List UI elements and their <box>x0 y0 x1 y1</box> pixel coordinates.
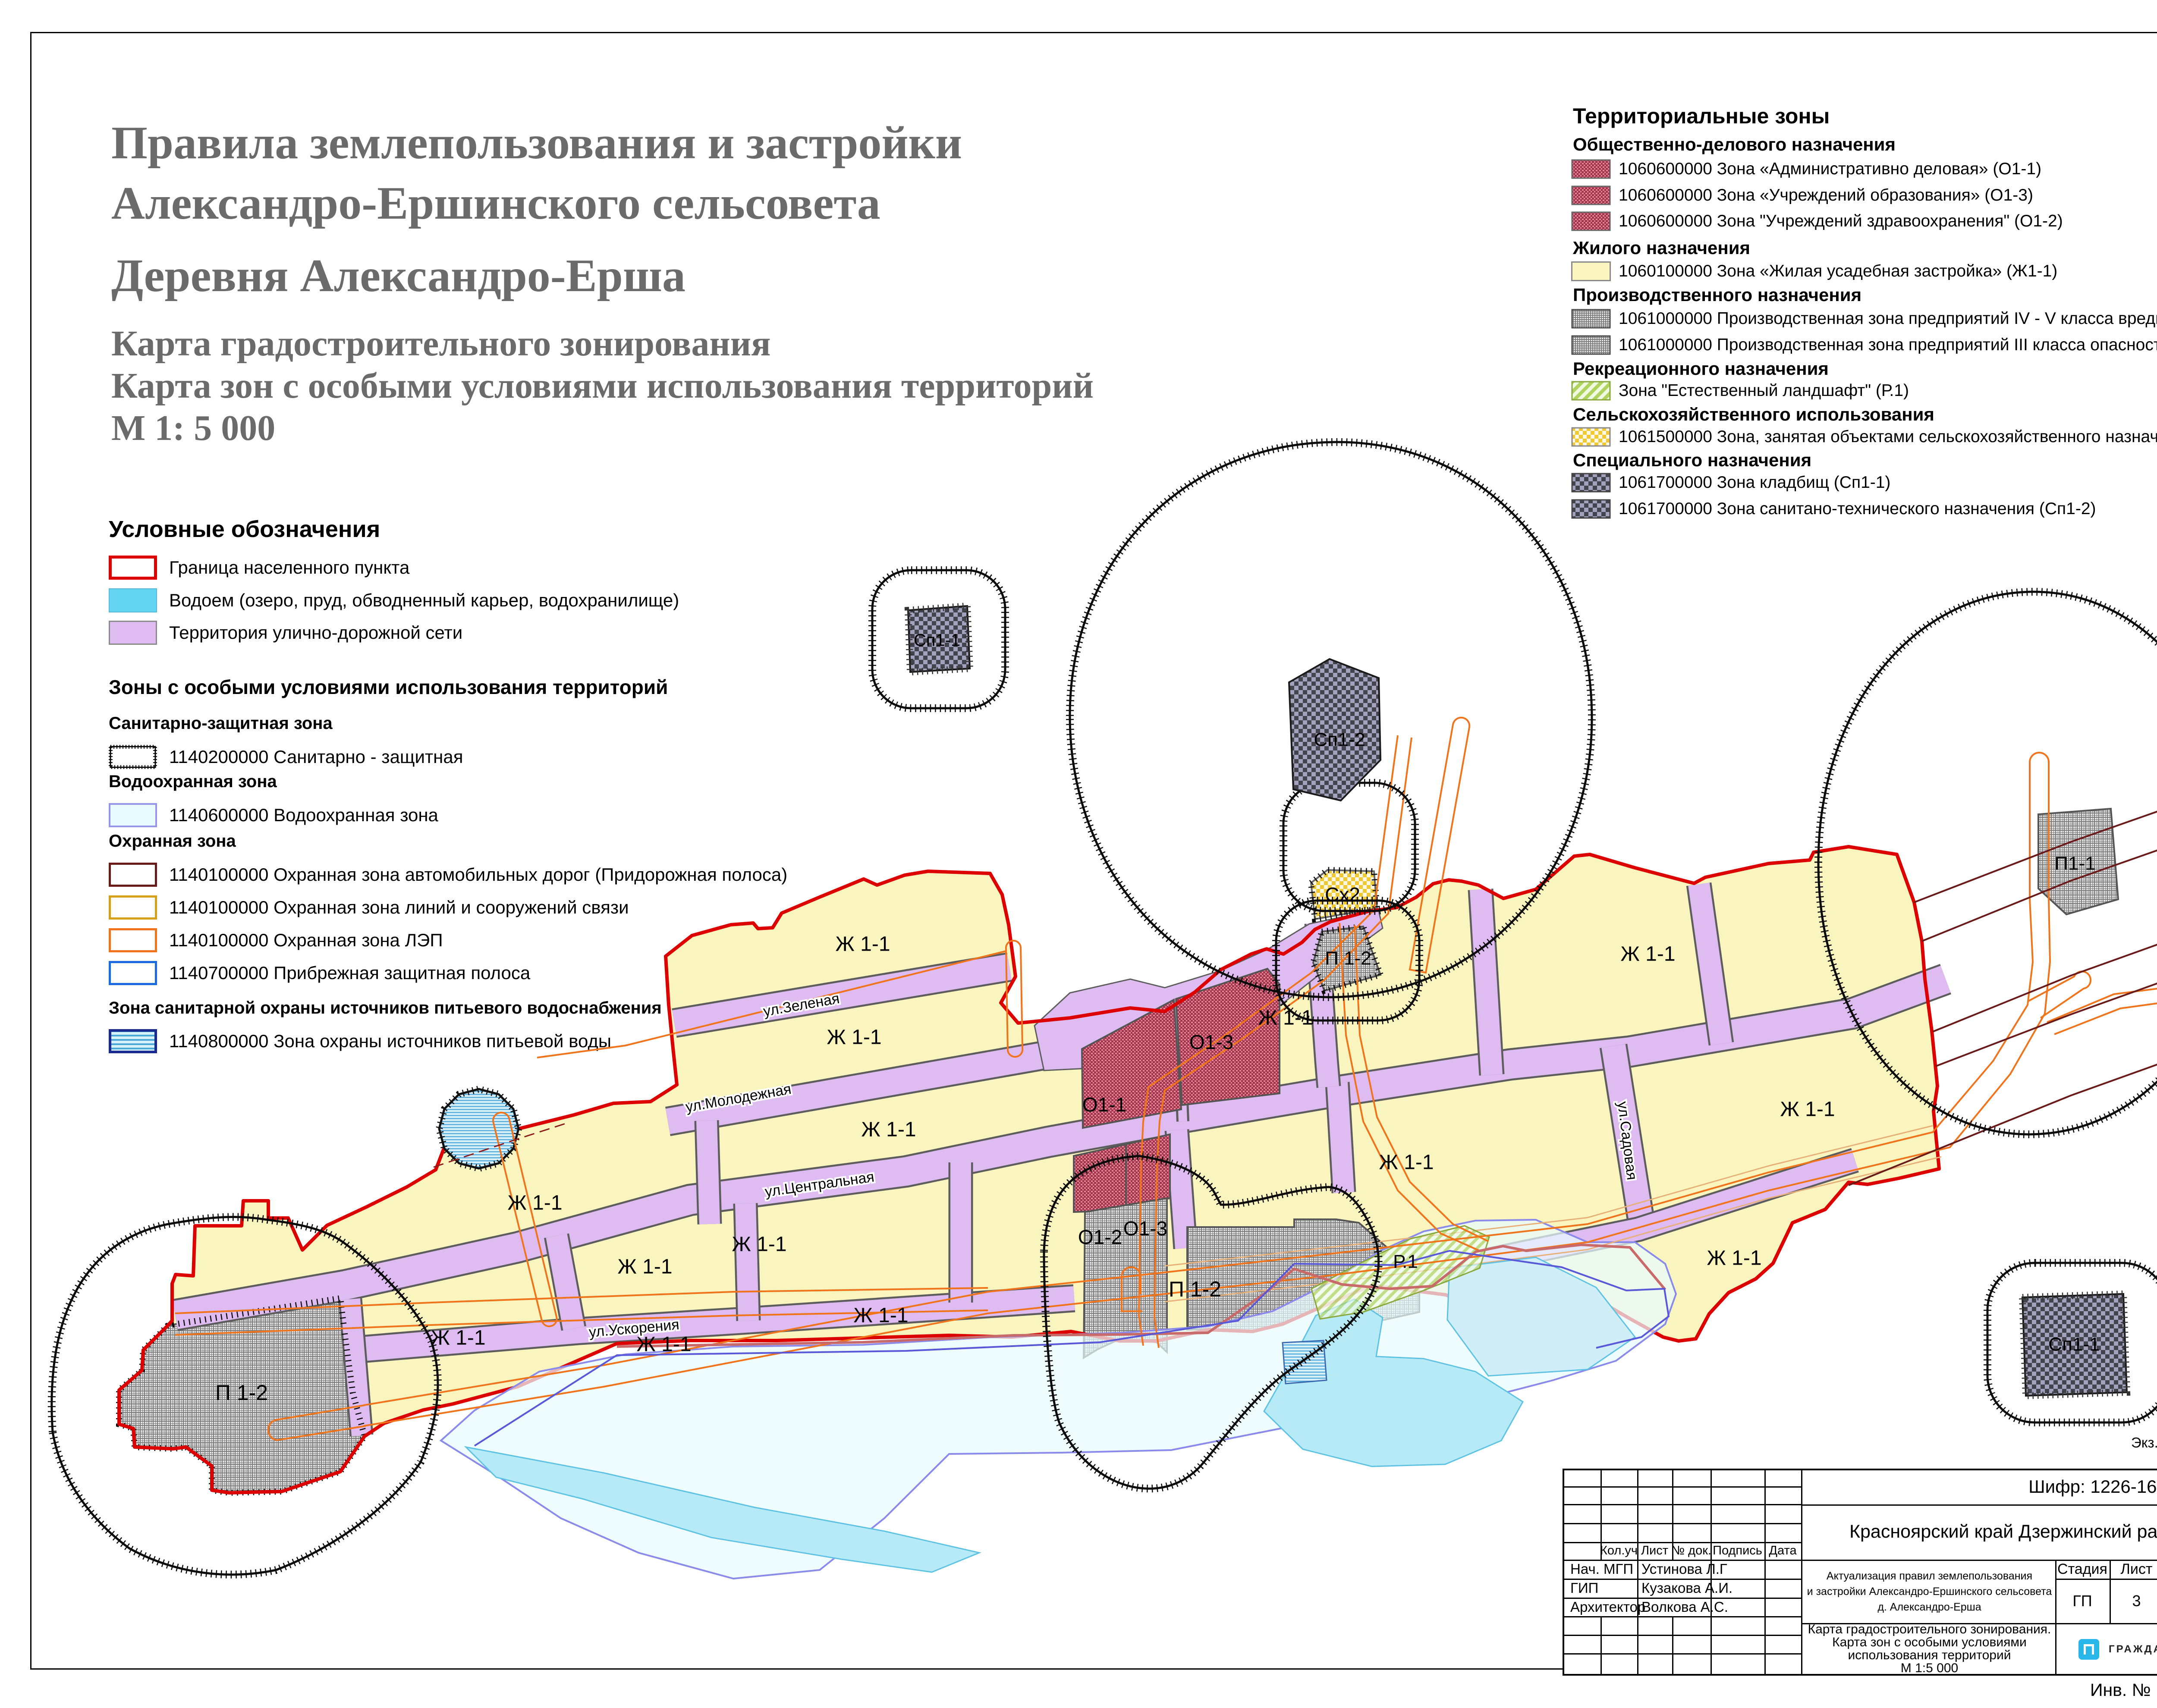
svg-text:Ж 1-1: Ж 1-1 <box>507 1192 562 1215</box>
svg-text:Ж 1-1: Ж 1-1 <box>636 1333 691 1356</box>
svg-text:Ж 1-1: Ж 1-1 <box>835 933 890 956</box>
svg-text:О1-1: О1-1 <box>1082 1093 1126 1116</box>
svg-text:Ж 1-1: Ж 1-1 <box>861 1118 916 1141</box>
svg-text:Ж 1-1: Ж 1-1 <box>1258 1007 1313 1030</box>
svg-text:Ж 1-1: Ж 1-1 <box>853 1304 908 1327</box>
svg-text:Ж 1-1: Ж 1-1 <box>431 1327 485 1350</box>
svg-text:О1-3: О1-3 <box>1189 1031 1233 1053</box>
svg-text:Р.1: Р.1 <box>1393 1251 1418 1272</box>
svg-text:Ж 1-1: Ж 1-1 <box>1780 1098 1835 1121</box>
svg-text:Ж 1-1: Ж 1-1 <box>617 1256 672 1278</box>
svg-text:Ж 1-1: Ж 1-1 <box>1379 1151 1434 1174</box>
svg-text:Сп1-1: Сп1-1 <box>2048 1334 2100 1355</box>
svg-text:Сх2: Сх2 <box>1325 883 1360 906</box>
svg-text:Сп1-2: Сп1-2 <box>1314 729 1365 750</box>
svg-text:Ж 1-1: Ж 1-1 <box>732 1233 786 1256</box>
svg-text:О1-3: О1-3 <box>1123 1217 1167 1240</box>
svg-text:Ж 1-1: Ж 1-1 <box>827 1026 881 1049</box>
svg-text:Ж 1-1: Ж 1-1 <box>1707 1247 1761 1270</box>
svg-text:Ж 1-1: Ж 1-1 <box>1620 943 1675 966</box>
svg-text:П 1-2: П 1-2 <box>1169 1277 1221 1301</box>
svg-text:П 1-2: П 1-2 <box>1325 948 1371 969</box>
svg-text:П1-1: П1-1 <box>2054 853 2095 874</box>
svg-text:О1-2: О1-2 <box>1078 1226 1122 1248</box>
svg-text:П 1-2: П 1-2 <box>215 1381 268 1405</box>
svg-text:Сп1-1: Сп1-1 <box>914 631 960 650</box>
